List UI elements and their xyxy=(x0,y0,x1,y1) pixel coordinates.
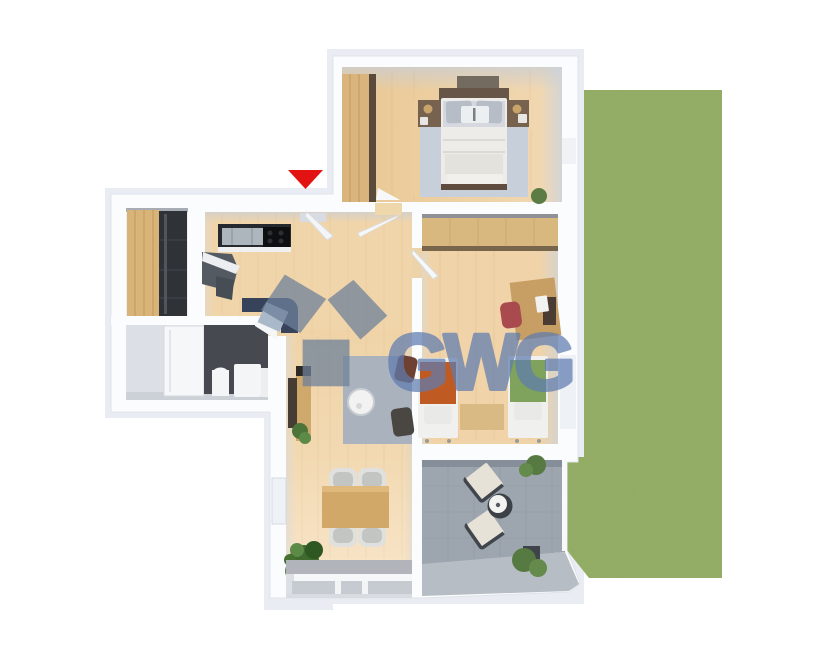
svg-text:GWG: GWG xyxy=(387,317,571,406)
